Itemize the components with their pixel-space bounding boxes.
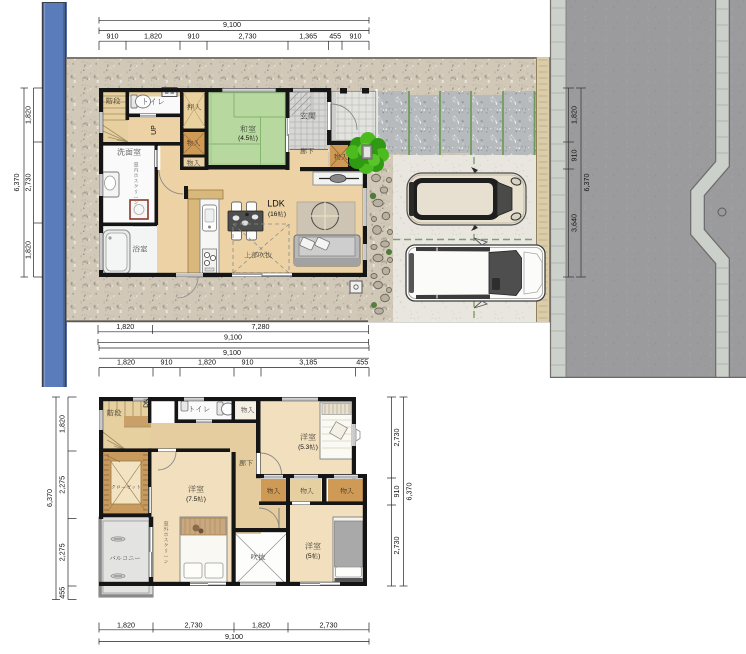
svg-text:2,730: 2,730 — [185, 621, 203, 630]
svg-text:(7.5: (7.5 — [186, 496, 198, 503]
svg-text:UP: UP — [151, 125, 158, 135]
svg-text:455: 455 — [58, 587, 67, 599]
svg-text:(5.3: (5.3 — [298, 444, 310, 451]
svg-text:910: 910 — [392, 486, 401, 498]
svg-text:1,820: 1,820 — [570, 106, 579, 124]
svg-text:6,370: 6,370 — [12, 174, 21, 192]
svg-text:1,820: 1,820 — [117, 358, 135, 367]
svg-text:9,100: 9,100 — [223, 20, 241, 29]
svg-text:(16: (16 — [268, 211, 278, 218]
svg-text:1,820: 1,820 — [198, 358, 216, 367]
svg-text:7,280: 7,280 — [252, 322, 270, 331]
svg-text:1,820: 1,820 — [144, 31, 162, 40]
svg-text:): ) — [284, 211, 286, 218]
svg-text:1,820: 1,820 — [58, 415, 67, 433]
svg-text:1,820: 1,820 — [117, 621, 135, 630]
svg-text:2,730: 2,730 — [239, 31, 257, 40]
svg-text:455: 455 — [356, 358, 368, 367]
svg-text:2,730: 2,730 — [392, 537, 401, 555]
svg-text:): ) — [204, 496, 206, 503]
svg-text:910: 910 — [242, 358, 254, 367]
svg-text:6,370: 6,370 — [582, 174, 591, 192]
svg-text:2,730: 2,730 — [320, 621, 338, 630]
svg-text:LDK: LDK — [267, 199, 285, 209]
svg-text:1,365: 1,365 — [299, 31, 317, 40]
svg-text:9,100: 9,100 — [225, 632, 243, 641]
svg-text:6,370: 6,370 — [405, 483, 414, 501]
svg-text:): ) — [318, 553, 320, 560]
svg-text:2,275: 2,275 — [58, 476, 67, 494]
svg-text:3,640: 3,640 — [570, 214, 579, 232]
svg-text:1,820: 1,820 — [252, 621, 270, 630]
svg-text:): ) — [316, 444, 318, 451]
svg-text:): ) — [256, 135, 258, 142]
svg-text:910: 910 — [570, 150, 579, 162]
svg-text:455: 455 — [329, 31, 341, 40]
svg-text:910: 910 — [161, 358, 173, 367]
svg-text:9,100: 9,100 — [224, 333, 242, 342]
svg-text:1,820: 1,820 — [23, 106, 32, 124]
svg-text:910: 910 — [350, 31, 362, 40]
svg-text:3,185: 3,185 — [299, 358, 317, 367]
svg-text:910: 910 — [107, 31, 119, 40]
svg-text:2,275: 2,275 — [58, 543, 67, 561]
svg-text:910: 910 — [188, 31, 200, 40]
svg-text:DN: DN — [143, 398, 150, 408]
svg-text:(4.5: (4.5 — [238, 135, 250, 142]
svg-text:2,730: 2,730 — [23, 174, 32, 192]
svg-text:6,370: 6,370 — [45, 489, 54, 507]
svg-text:2,730: 2,730 — [392, 429, 401, 447]
svg-text:1,820: 1,820 — [23, 241, 32, 259]
svg-text:(5: (5 — [306, 553, 312, 560]
svg-text:9,100: 9,100 — [223, 348, 241, 357]
svg-text:1,820: 1,820 — [116, 322, 134, 331]
